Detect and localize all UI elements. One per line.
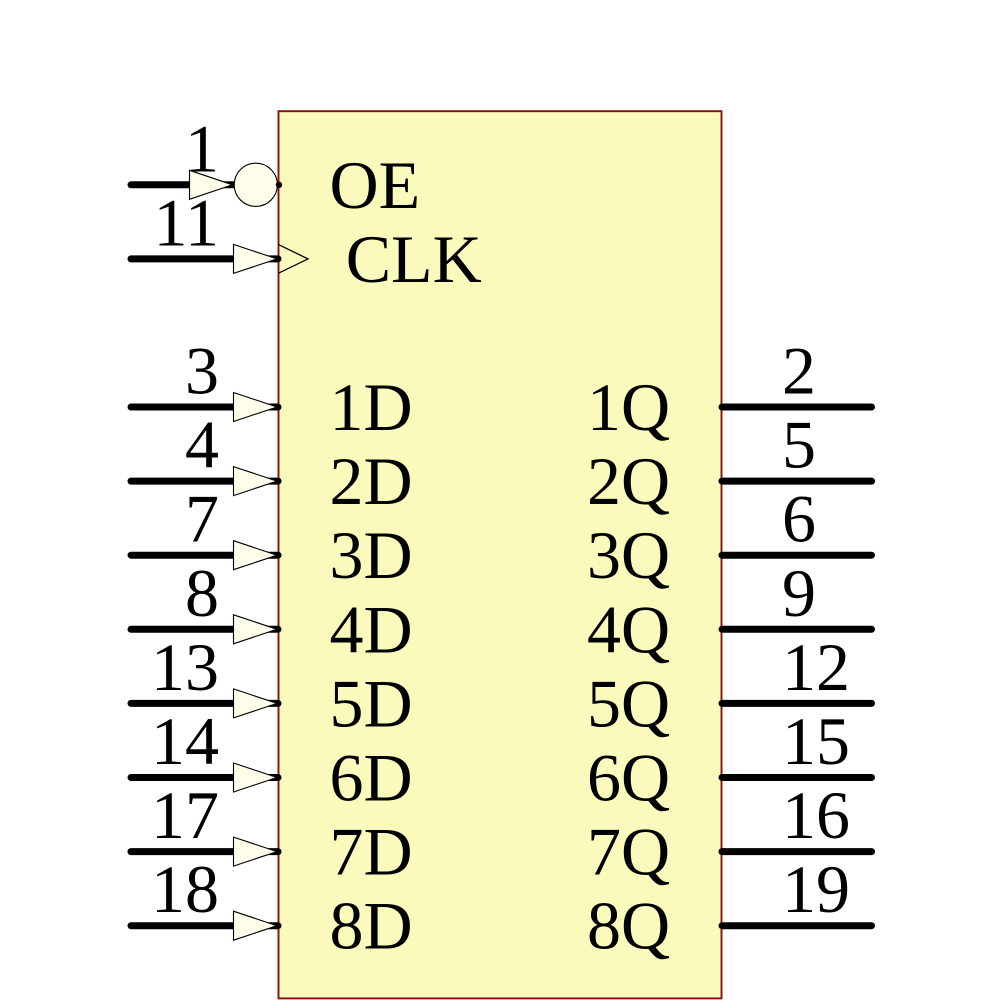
svg-text:4Q: 4Q — [587, 591, 670, 667]
svg-text:15: 15 — [782, 703, 850, 779]
svg-text:5D: 5D — [330, 665, 413, 741]
svg-text:2: 2 — [782, 333, 816, 409]
svg-text:CLK: CLK — [346, 221, 482, 297]
svg-text:8Q: 8Q — [587, 888, 670, 964]
svg-text:5Q: 5Q — [587, 665, 670, 741]
svg-text:1D: 1D — [330, 369, 413, 445]
svg-text:12: 12 — [782, 629, 850, 705]
svg-text:9: 9 — [782, 555, 816, 631]
svg-text:6: 6 — [782, 481, 816, 557]
svg-text:6Q: 6Q — [587, 740, 670, 816]
svg-text:6D: 6D — [330, 740, 413, 816]
svg-text:11: 11 — [154, 184, 219, 260]
svg-text:3Q: 3Q — [587, 517, 670, 593]
svg-text:18: 18 — [151, 851, 219, 927]
svg-text:14: 14 — [151, 703, 219, 779]
svg-text:5: 5 — [782, 407, 816, 483]
svg-text:7Q: 7Q — [587, 814, 670, 890]
svg-text:13: 13 — [151, 629, 219, 705]
svg-text:19: 19 — [782, 851, 850, 927]
svg-text:17: 17 — [151, 777, 219, 853]
svg-text:8: 8 — [185, 555, 219, 631]
svg-text:1Q: 1Q — [587, 369, 670, 445]
svg-text:4D: 4D — [330, 591, 413, 667]
svg-text:8D: 8D — [330, 888, 413, 964]
svg-text:16: 16 — [782, 777, 850, 853]
svg-text:4: 4 — [185, 407, 219, 483]
svg-text:3: 3 — [185, 333, 219, 409]
svg-text:OE: OE — [330, 147, 421, 223]
svg-text:1: 1 — [185, 110, 219, 186]
svg-text:2D: 2D — [330, 443, 413, 519]
svg-text:7: 7 — [185, 481, 219, 557]
svg-text:2Q: 2Q — [587, 443, 670, 519]
svg-text:3D: 3D — [330, 517, 413, 593]
svg-text:7D: 7D — [330, 814, 413, 890]
